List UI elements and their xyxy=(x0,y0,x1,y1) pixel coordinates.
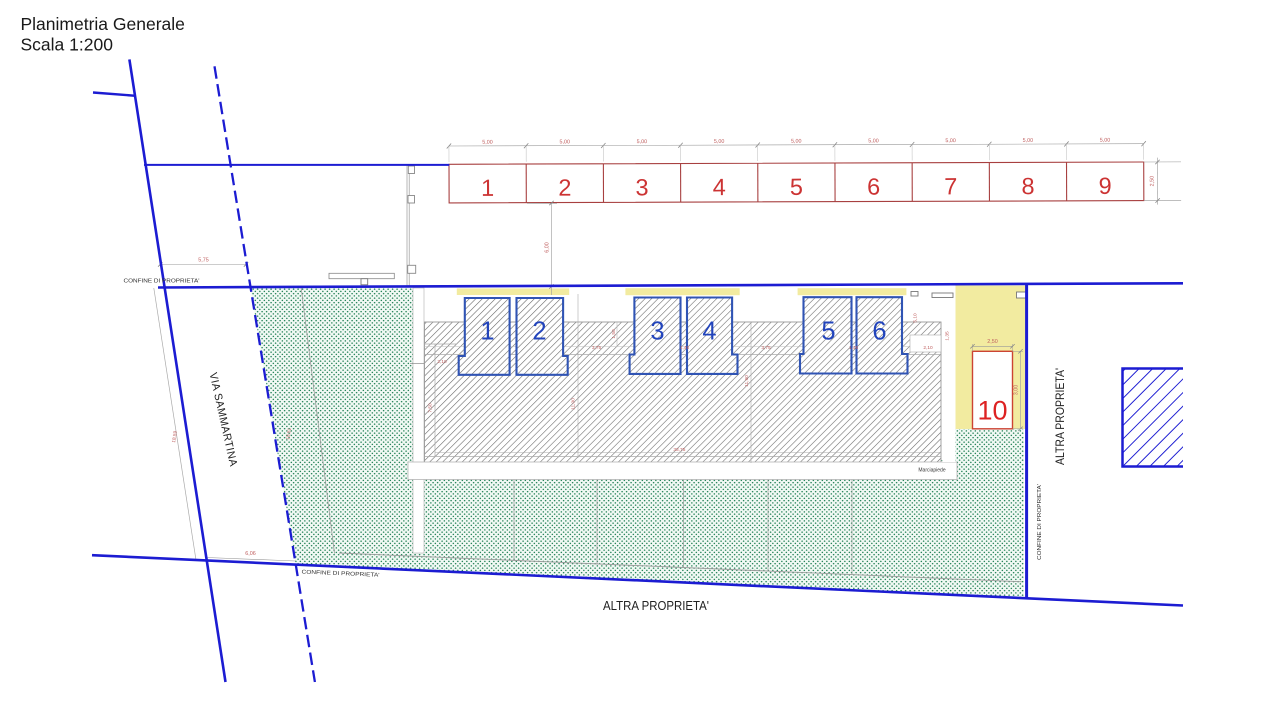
svg-text:2,10: 2,10 xyxy=(437,359,447,365)
svg-text:11,00: 11,00 xyxy=(571,398,577,410)
svg-text:CONFINE DI PROPRIETA': CONFINE DI PROPRIETA' xyxy=(124,279,200,285)
svg-text:11,90: 11,90 xyxy=(744,375,750,387)
svg-text:33,75: 33,75 xyxy=(673,447,685,453)
svg-text:Marciapiede: Marciapiede xyxy=(918,467,945,473)
svg-text:6,00: 6,00 xyxy=(545,242,551,253)
svg-text:5: 5 xyxy=(790,174,803,200)
svg-text:2,50: 2,50 xyxy=(1150,176,1156,187)
svg-text:5,00: 5,00 xyxy=(482,140,493,146)
svg-text:4: 4 xyxy=(713,174,726,200)
svg-text:Planimetria Generale: Planimetria Generale xyxy=(21,14,185,34)
svg-text:2,10: 2,10 xyxy=(923,345,933,351)
svg-text:5,00: 5,00 xyxy=(714,139,725,145)
svg-text:8: 8 xyxy=(1021,173,1034,199)
svg-text:1,45: 1,45 xyxy=(849,345,859,351)
svg-text:6,06: 6,06 xyxy=(245,551,256,557)
svg-text:2,50: 2,50 xyxy=(987,339,998,345)
svg-text:10: 10 xyxy=(977,396,1007,426)
svg-text:1: 1 xyxy=(480,318,494,346)
svg-text:7: 7 xyxy=(944,173,957,199)
svg-text:1: 1 xyxy=(481,175,494,201)
svg-text:3,75: 3,75 xyxy=(761,345,771,351)
svg-text:5,10: 5,10 xyxy=(913,313,919,323)
svg-text:5,00: 5,00 xyxy=(559,139,570,145)
svg-text:5,00: 5,00 xyxy=(1023,138,1034,144)
svg-text:5,00: 5,00 xyxy=(791,139,802,145)
svg-text:ALTRA PROPRIETA': ALTRA PROPRIETA' xyxy=(1055,368,1067,465)
svg-text:5,00: 5,00 xyxy=(1100,138,1111,144)
svg-text:2: 2 xyxy=(558,175,571,201)
svg-text:3: 3 xyxy=(650,318,664,346)
svg-text:3: 3 xyxy=(635,174,648,200)
svg-text:1,50: 1,50 xyxy=(611,329,617,339)
svg-text:9: 9 xyxy=(1099,173,1112,199)
svg-text:6: 6 xyxy=(867,174,880,200)
svg-text:6: 6 xyxy=(872,318,886,346)
svg-text:5,00: 5,00 xyxy=(637,139,648,145)
svg-text:5,00: 5,00 xyxy=(945,138,956,144)
svg-text:7,50: 7,50 xyxy=(428,403,434,413)
svg-text:CONFINE DI PROPRIETA': CONFINE DI PROPRIETA' xyxy=(1037,484,1043,560)
svg-text:Scala 1:200: Scala 1:200 xyxy=(21,35,114,55)
svg-text:ALTRA PROPRIETA': ALTRA PROPRIETA' xyxy=(603,599,709,613)
svg-text:3,75: 3,75 xyxy=(592,345,602,351)
svg-text:5: 5 xyxy=(821,318,835,346)
svg-text:2: 2 xyxy=(532,318,546,346)
svg-text:4: 4 xyxy=(702,318,716,346)
svg-text:5,00: 5,00 xyxy=(868,138,879,144)
svg-text:5,75: 5,75 xyxy=(198,258,209,264)
svg-text:1,35: 1,35 xyxy=(945,331,951,341)
svg-text:1,45: 1,45 xyxy=(680,345,690,351)
svg-text:3,00: 3,00 xyxy=(1014,385,1020,396)
